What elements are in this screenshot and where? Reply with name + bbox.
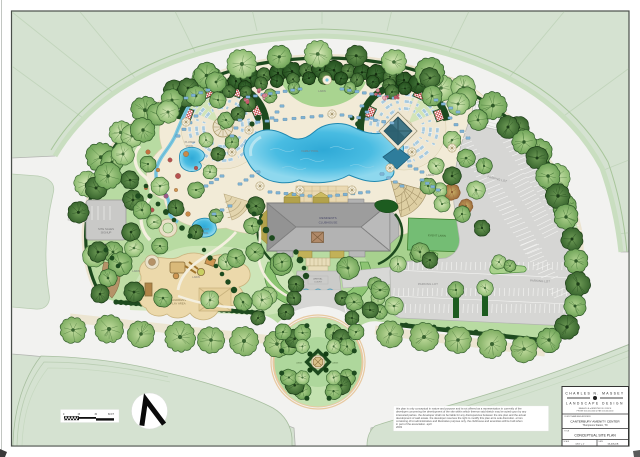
svg-text:EVENT LAWN: EVENT LAWN — [428, 233, 446, 238]
svg-text:LAWN: LAWN — [426, 173, 434, 177]
svg-text:CLIENT NAME AND ADDRESS: CLIENT NAME AND ADDRESS — [564, 415, 591, 418]
svg-text:CANTERBURY AMENITY CENTER: CANTERBURY AMENITY CENTER — [570, 420, 620, 424]
svg-text:PHONE 615.000.0000 ● FAX 615: PHONE 615.000.0000 ● FAX 615.000.0000 — [577, 410, 614, 413]
svg-text:Thompsons Station, TN: Thompsons Station, TN — [582, 424, 607, 427]
svg-text:CHARLES N. MASSEY: CHARLES N. MASSEY — [565, 392, 624, 396]
svg-text:FAMILY POOL: FAMILY POOL — [302, 149, 319, 153]
svg-text:LAWN: LAWN — [132, 269, 140, 273]
svg-text:LAWN: LAWN — [318, 89, 326, 93]
svg-text:PARKING LOT: PARKING LOT — [418, 282, 438, 286]
svg-text:LAWN: LAWN — [192, 275, 200, 279]
svg-text:LANDSCAPE DESIGN: LANDSCAPE DESIGN — [566, 402, 624, 406]
svg-text:POOL: POOL — [186, 144, 194, 148]
svg-text:NASHVILLE ● BRENTWOOD OFFICE: NASHVILLE ● BRENTWOOD OFFICE — [579, 407, 612, 410]
svg-text:SCALE: SCALE — [564, 440, 570, 443]
svg-text:1/16" = 1': 1/16" = 1' — [575, 443, 585, 445]
svg-text:PLAY AREA: PLAY AREA — [170, 302, 185, 306]
svg-text:PLUNGE: PLUNGE — [185, 140, 196, 144]
svg-text:03-005-DB: 03-005-DB — [608, 443, 619, 445]
svg-text:TITLE: TITLE — [564, 431, 570, 433]
svg-text:CONCEPTUAL SITE PLAN: CONCEPTUAL SITE PLAN — [574, 434, 616, 438]
svg-text:LAWN: LAWN — [296, 362, 303, 365]
svg-text:LAWN: LAWN — [332, 362, 339, 365]
svg-text:COURT: COURT — [314, 281, 322, 283]
svg-text:2003: 2003 — [396, 425, 402, 429]
svg-text:SIGNUP: SIGNUP — [101, 231, 112, 235]
svg-text:CLUBHOUSE: CLUBHOUSE — [319, 220, 338, 224]
svg-text:60 FT: 60 FT — [108, 414, 115, 416]
svg-text:RESIDENTS: RESIDENTS — [319, 216, 336, 220]
svg-text:POOL: POOL — [201, 231, 209, 235]
svg-text:RIVER: RIVER — [201, 227, 209, 231]
svg-text:ARRIVAL: ARRIVAL — [313, 278, 323, 281]
